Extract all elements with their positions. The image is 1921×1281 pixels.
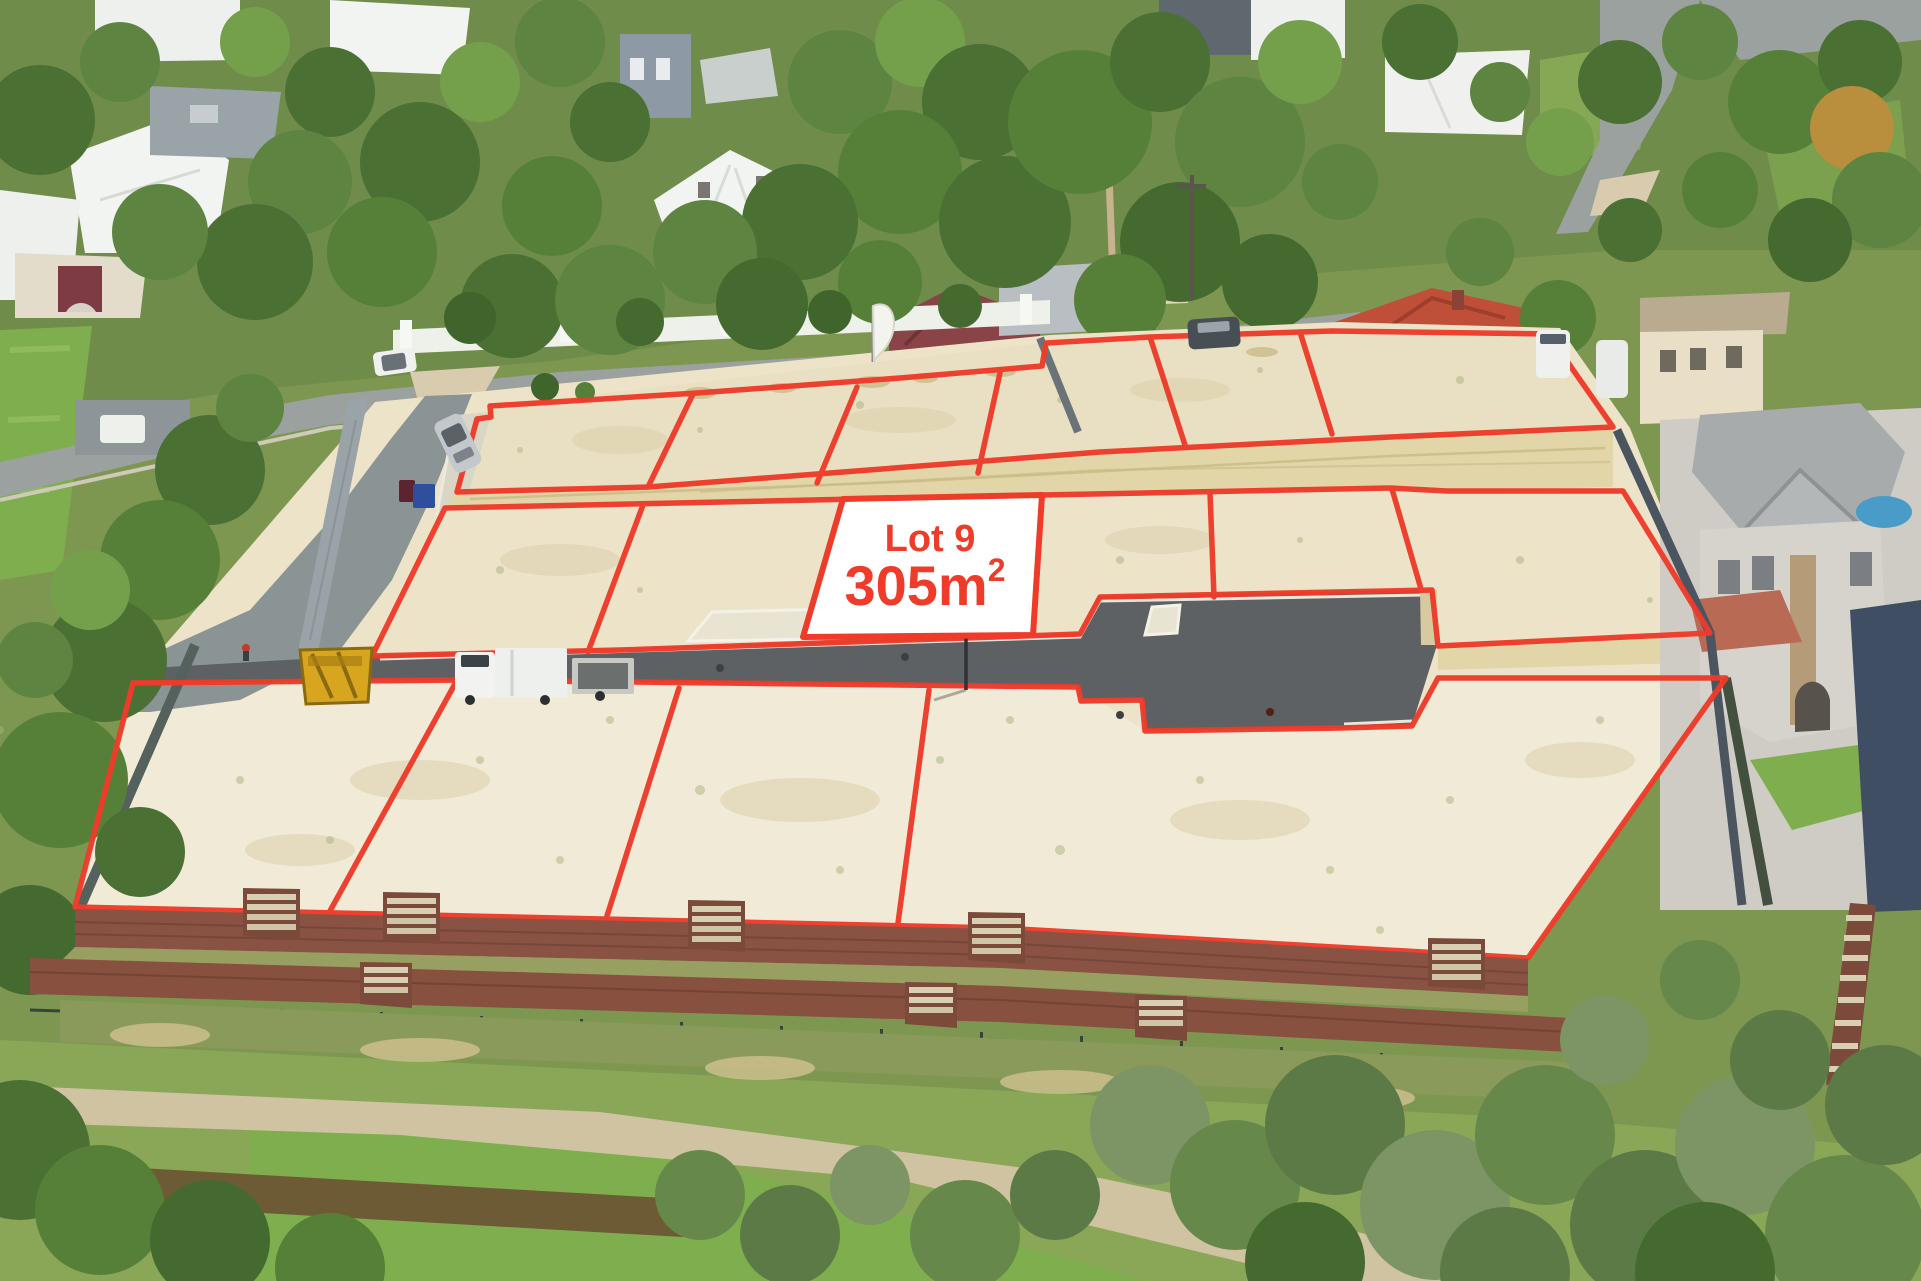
person <box>242 644 250 652</box>
bin-dark <box>399 480 415 502</box>
skip-bin <box>300 648 372 704</box>
aerial-photo: Lot 9 305m2 <box>0 0 1921 1281</box>
grey-two-storey-house <box>1660 403 1921 912</box>
lot9-highlight: Lot 9 305m2 <box>803 495 1042 637</box>
aerial-photo-canvas: Lot 9 305m2 <box>0 0 1921 1281</box>
bin-blue <box>413 484 435 508</box>
lot9-area-text: 305m2 <box>844 552 1005 617</box>
white-suv <box>1596 340 1628 398</box>
dark-suv <box>1187 316 1241 350</box>
